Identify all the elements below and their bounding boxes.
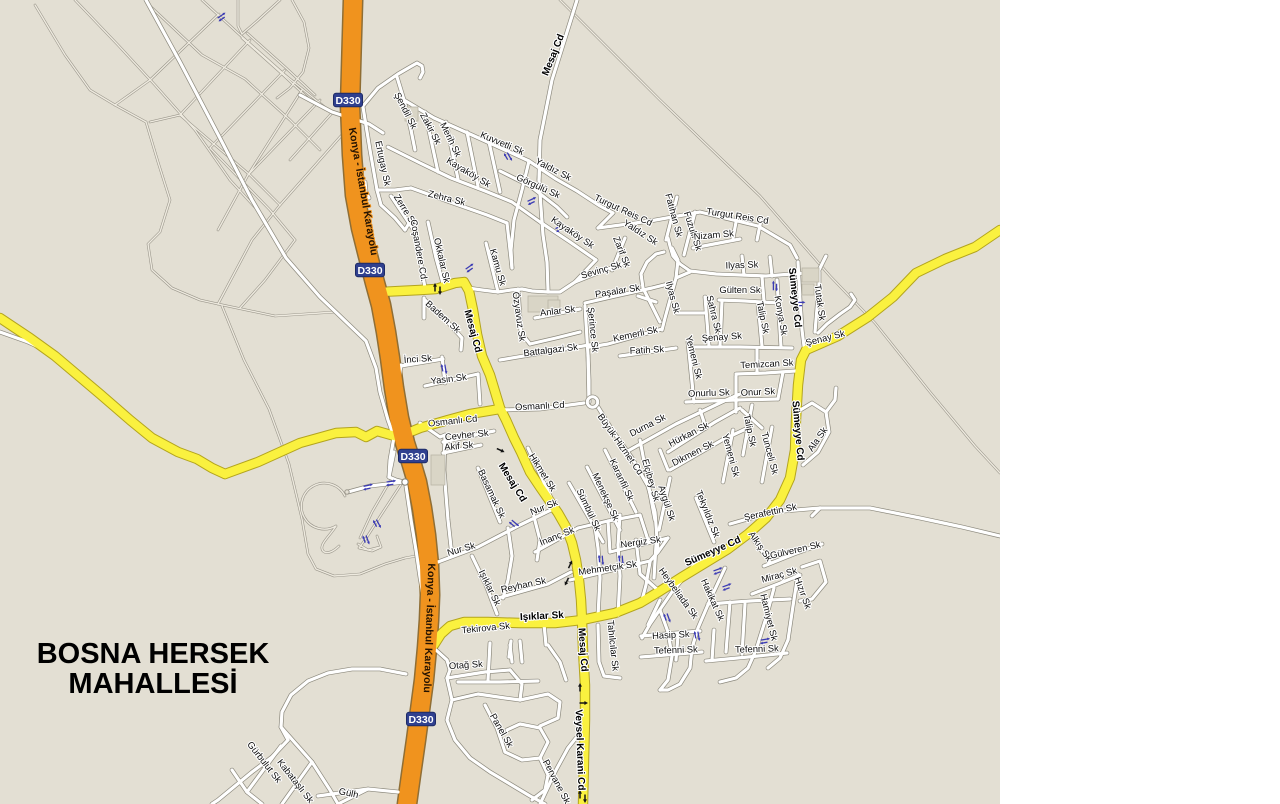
svg-text:İnci Sk: İnci Sk [403,352,432,365]
svg-text:Fatih Sk: Fatih Sk [629,343,664,356]
svg-text:Onurlu Sk: Onurlu Sk [688,386,730,398]
svg-text:Hasip Sk: Hasip Sk [652,628,690,641]
svg-text:BOSNA HERSEK: BOSNA HERSEK [37,638,270,670]
svg-text:D330: D330 [335,95,360,107]
svg-text:MAHALLESİ: MAHALLESİ [68,668,237,700]
svg-text:Gülten Sk: Gülten Sk [719,284,760,295]
svg-text:Tefenni Sk: Tefenni Sk [654,643,698,656]
svg-text:Onur Sk: Onur Sk [740,385,775,398]
svg-text:D330: D330 [357,265,382,277]
svg-text:Tefenni Sk: Tefenni Sk [735,642,779,655]
svg-text:D330: D330 [400,451,425,463]
svg-text:Ilyas Sk: Ilyas Sk [725,258,758,270]
svg-text:D330: D330 [408,714,433,726]
svg-text:Işıklar Sk: Işıklar Sk [520,610,565,623]
